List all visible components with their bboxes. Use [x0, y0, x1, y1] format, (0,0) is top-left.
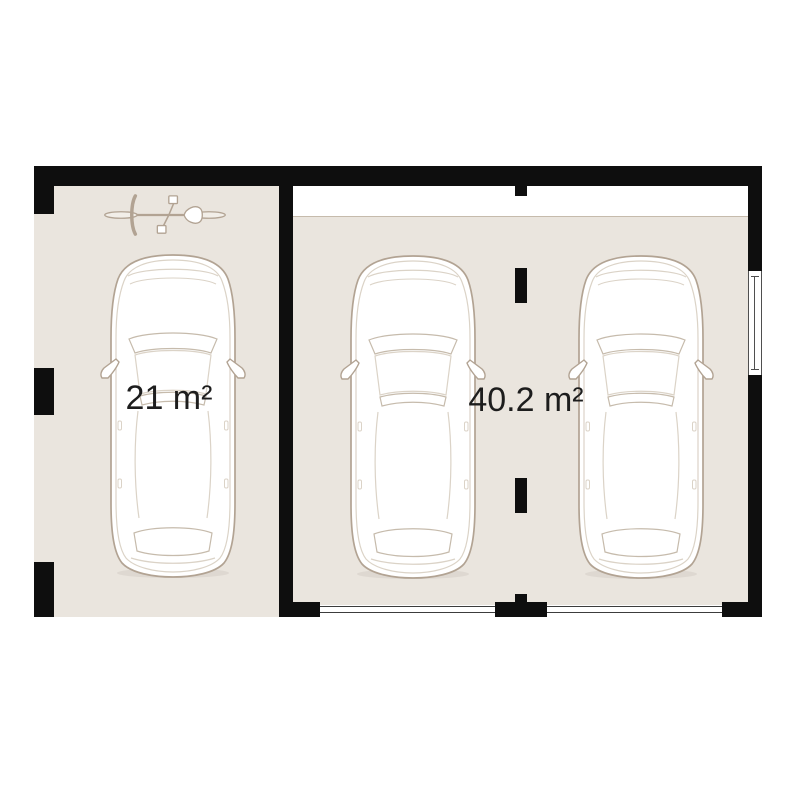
wall-center-foot [293, 602, 320, 617]
bay-divider-post-upper [515, 268, 527, 303]
pier-tick-bottom [515, 594, 527, 603]
window-glass-line [754, 277, 755, 369]
window-cap-top [751, 276, 759, 277]
area-label-right-garage: 40.2 m² [468, 383, 583, 417]
wall-right-upper [748, 186, 762, 271]
window-cap-bottom [751, 369, 759, 370]
garage-door-left-inner-line [320, 612, 495, 614]
garage-door-right-inner-line [547, 612, 722, 614]
wall-bottom-center-pier [495, 602, 547, 617]
wall-right-lower [748, 375, 762, 617]
garage-door-left-outer-line [320, 606, 495, 608]
pier-tick-top [515, 186, 527, 196]
wall-left-middle-pier [34, 368, 54, 415]
bay-divider-post-lower [515, 478, 527, 513]
garage-door-right-outer-line [547, 606, 722, 608]
floor-plan-canvas: 21 m² 40.2 m² [0, 0, 800, 800]
window-icon [748, 271, 762, 375]
area-label-left-garage: 21 m² [126, 381, 213, 415]
wall-top [34, 166, 762, 186]
car-icon [338, 254, 488, 580]
car-icon [566, 254, 716, 580]
wall-left-upper-stub [34, 186, 54, 214]
entry-strip-divider-line [293, 216, 748, 218]
wall-left-lower-pier [34, 562, 54, 617]
bicycle-icon [100, 193, 230, 237]
wall-center [279, 186, 293, 617]
